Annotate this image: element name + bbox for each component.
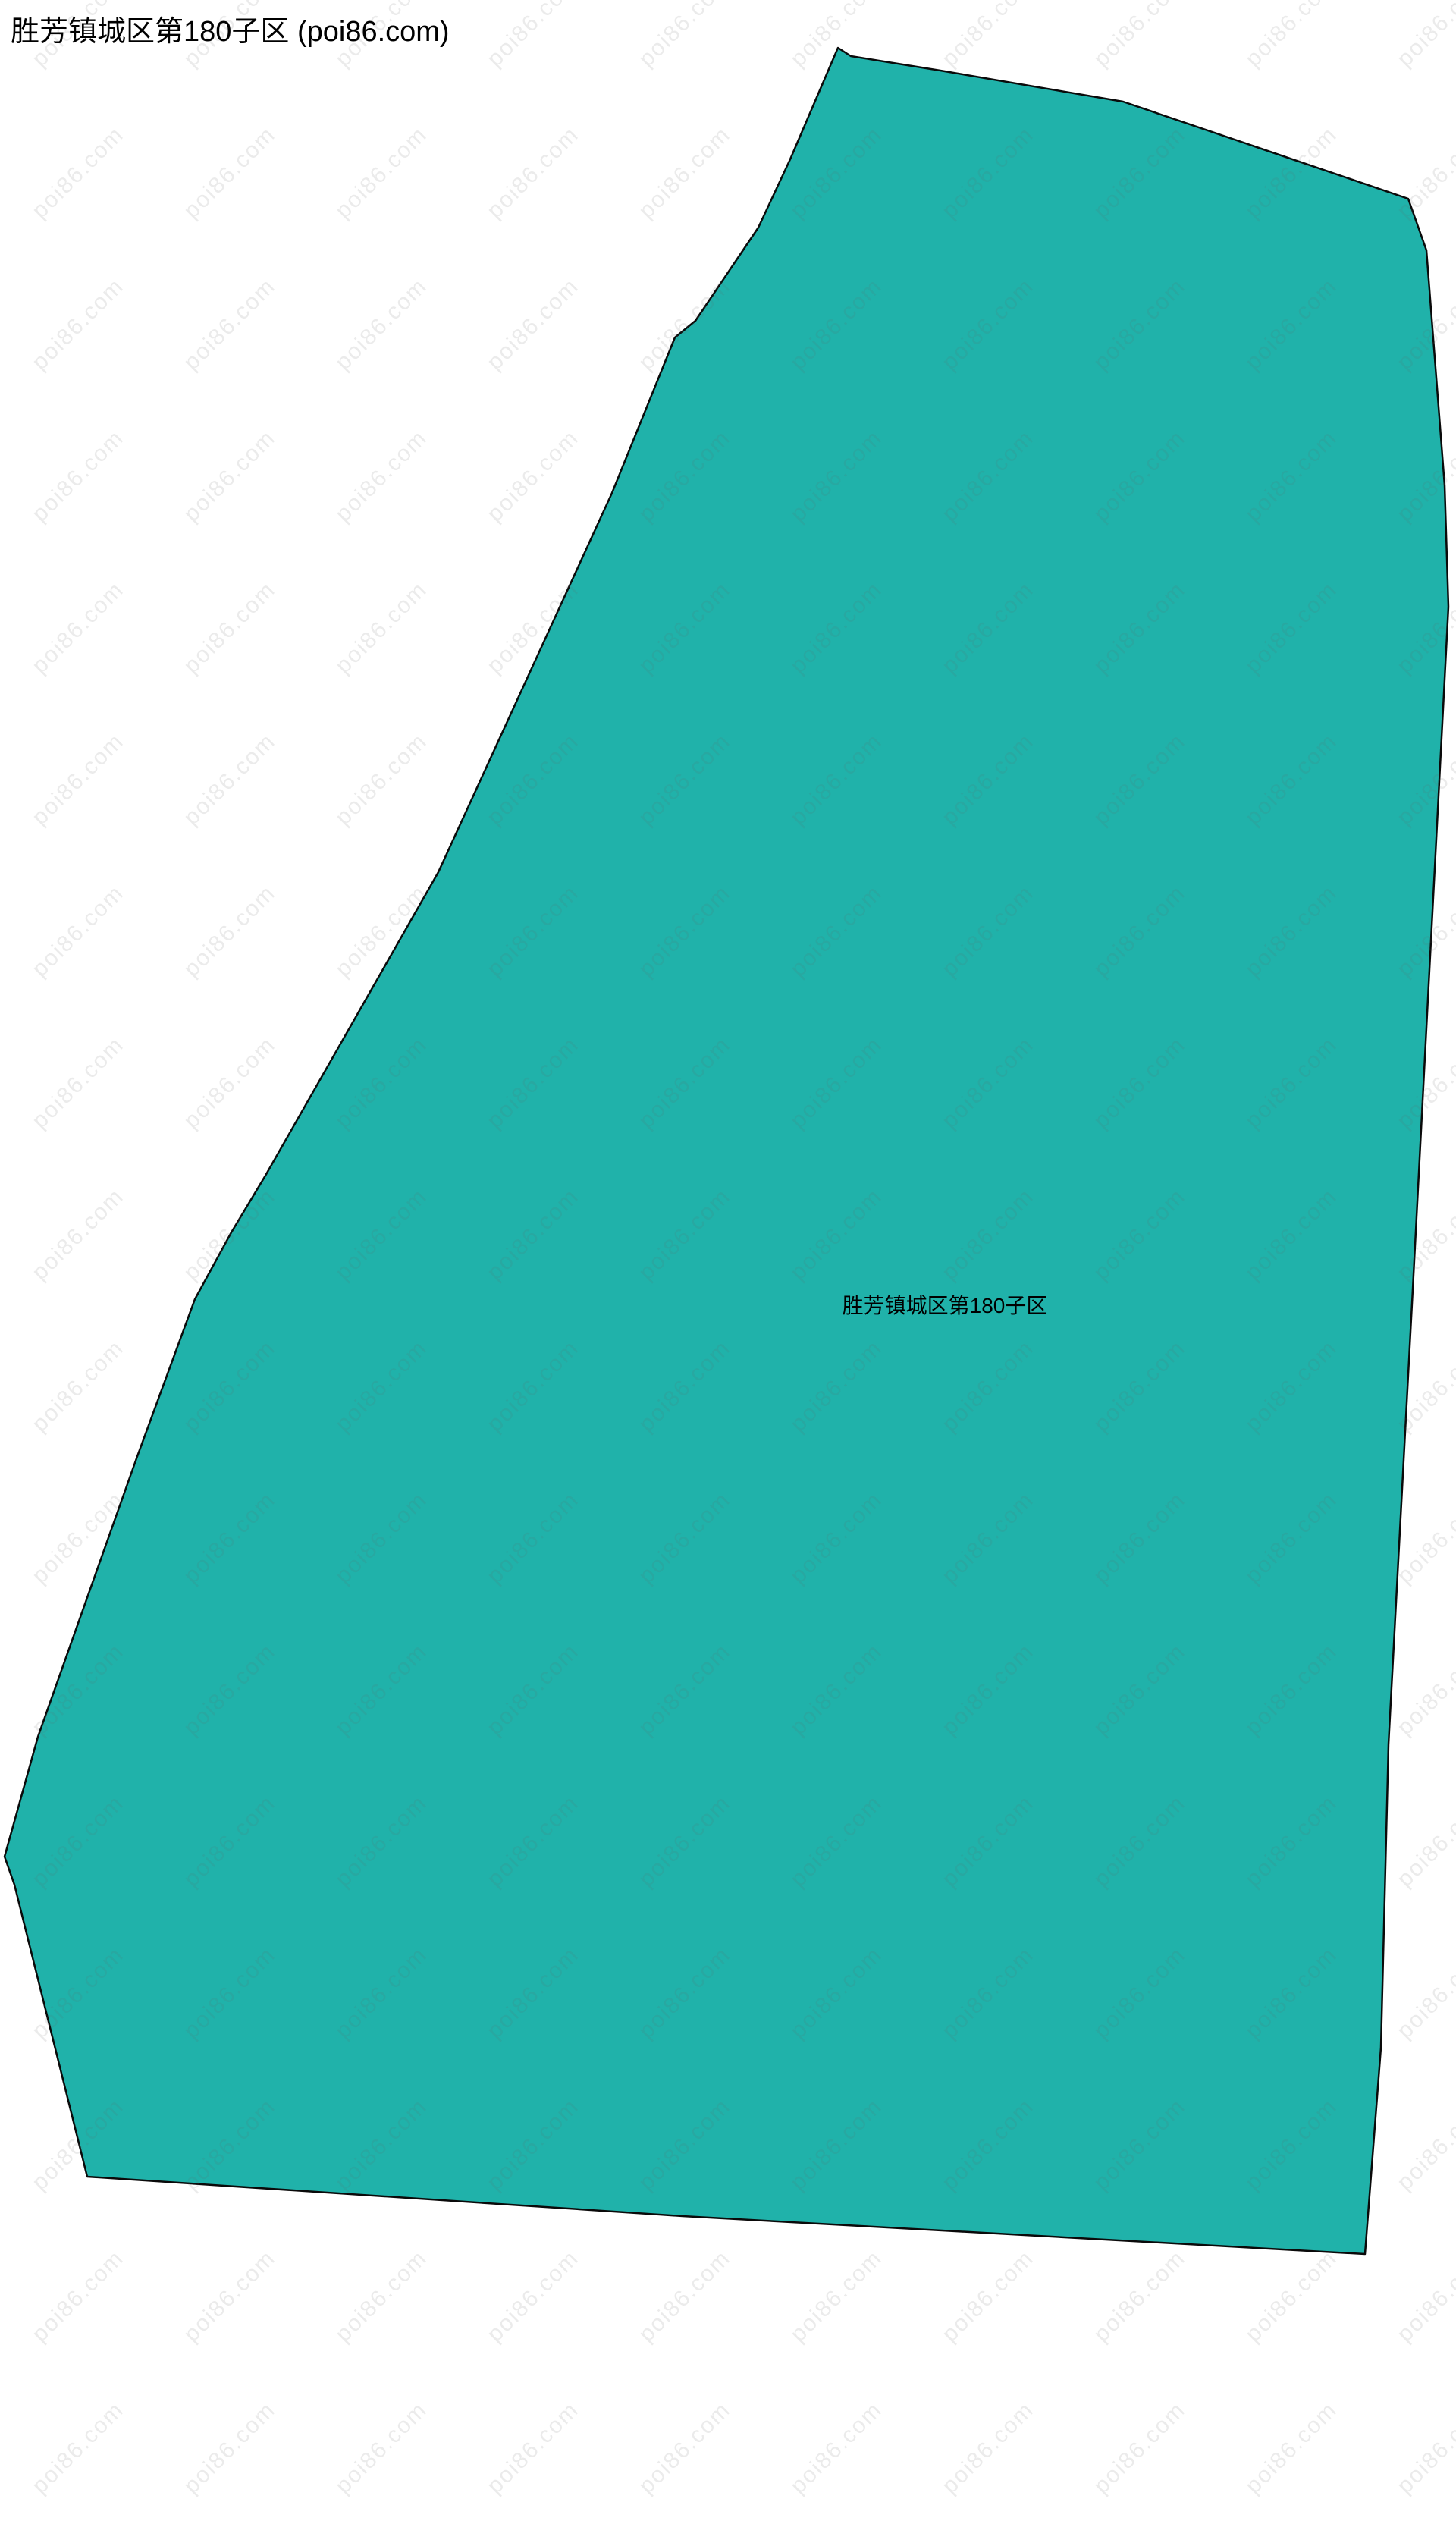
watermark-text: poi86.com: [331, 2397, 433, 2500]
watermark-tile: poi86.com: [1064, 2372, 1216, 2524]
watermark-text: poi86.com: [786, 2397, 888, 2500]
watermark-text: poi86.com: [937, 2397, 1040, 2500]
watermark-text: poi86.com: [27, 2397, 130, 2500]
watermark-text: poi86.com: [1241, 2397, 1343, 2500]
map-canvas: [0, 0, 1456, 2304]
watermark-text: poi86.com: [1392, 2397, 1456, 2500]
page-title: 胜芳镇城区第180子区 (poi86.com): [11, 8, 450, 49]
watermark-tile: poi86.com: [1216, 2372, 1367, 2524]
watermark-tile: poi86.com: [912, 2372, 1064, 2524]
district-region-polygon: [5, 48, 1448, 2254]
watermark-tile: poi86.com: [1367, 2372, 1456, 2524]
watermark-tile: poi86.com: [457, 2372, 609, 2524]
watermark-text: poi86.com: [179, 2397, 281, 2500]
watermark-text: poi86.com: [1089, 2397, 1191, 2500]
watermark-tile: poi86.com: [306, 2372, 457, 2524]
watermark-text: poi86.com: [482, 2397, 585, 2500]
watermark-tile: poi86.com: [154, 2372, 306, 2524]
watermark-tile: poi86.com: [609, 2372, 761, 2524]
watermark-tile: poi86.com: [2, 2372, 154, 2524]
watermark-tile: poi86.com: [0, 2372, 2, 2524]
watermark-tile: poi86.com: [761, 2372, 912, 2524]
district-region-label: 胜芳镇城区第180子区: [843, 1289, 1048, 1320]
watermark-text: poi86.com: [634, 2397, 736, 2500]
